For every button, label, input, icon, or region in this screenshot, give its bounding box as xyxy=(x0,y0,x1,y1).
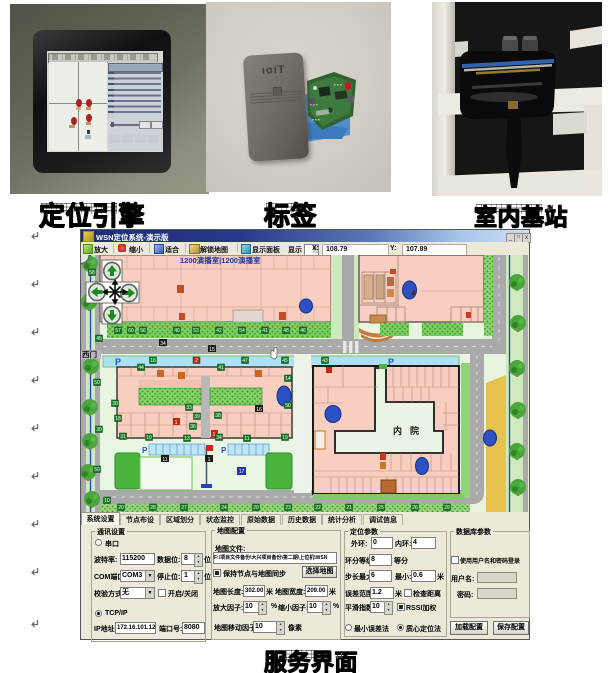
svg-text:34: 34 xyxy=(216,435,222,441)
svg-text:45: 45 xyxy=(96,336,102,342)
svg-text:10: 10 xyxy=(146,435,152,441)
svg-text:10: 10 xyxy=(104,498,110,504)
svg-text:47: 47 xyxy=(242,358,248,364)
svg-text:21: 21 xyxy=(346,505,352,511)
svg-text:50: 50 xyxy=(285,403,291,409)
svg-text:P: P xyxy=(142,446,148,455)
svg-text:48: 48 xyxy=(283,328,289,334)
svg-text:2: 2 xyxy=(195,358,198,364)
svg-text:16: 16 xyxy=(150,358,156,364)
svg-text:60: 60 xyxy=(128,328,134,334)
svg-text:18: 18 xyxy=(115,416,121,422)
svg-text:40: 40 xyxy=(174,328,180,334)
svg-text:27: 27 xyxy=(181,505,187,511)
svg-text:31: 31 xyxy=(120,434,126,440)
svg-text:53: 53 xyxy=(193,328,199,334)
svg-text:41: 41 xyxy=(218,365,224,371)
svg-text:45: 45 xyxy=(282,358,288,364)
svg-text:46: 46 xyxy=(300,328,306,334)
svg-text:38: 38 xyxy=(215,413,221,419)
svg-text:14: 14 xyxy=(285,376,291,382)
svg-text:16: 16 xyxy=(256,407,262,413)
svg-text:28: 28 xyxy=(150,505,156,511)
svg-text:26: 26 xyxy=(412,505,418,511)
svg-text:P: P xyxy=(221,446,227,455)
svg-text:58: 58 xyxy=(89,270,95,276)
svg-text:50: 50 xyxy=(94,467,100,473)
svg-text:11: 11 xyxy=(162,457,167,463)
svg-text:1200演播室|1200演播室: 1200演播室|1200演播室 xyxy=(180,255,261,265)
svg-text:36: 36 xyxy=(190,424,196,430)
svg-text:30: 30 xyxy=(112,401,118,407)
svg-text:13: 13 xyxy=(184,436,190,442)
svg-text:54: 54 xyxy=(239,328,245,334)
svg-text:P: P xyxy=(115,357,121,367)
svg-text:41: 41 xyxy=(262,328,268,334)
svg-text:24: 24 xyxy=(221,505,227,511)
svg-text:20: 20 xyxy=(118,505,124,511)
svg-text:20: 20 xyxy=(253,505,259,511)
svg-text:1: 1 xyxy=(175,420,178,426)
svg-text:1: 1 xyxy=(208,457,211,463)
svg-text:50: 50 xyxy=(94,380,100,386)
svg-text:57: 57 xyxy=(115,328,121,334)
svg-text:43: 43 xyxy=(322,358,328,364)
svg-text:23: 23 xyxy=(285,505,291,511)
svg-text:西门: 西门 xyxy=(82,349,97,359)
svg-text:22: 22 xyxy=(315,505,321,511)
svg-text:15: 15 xyxy=(209,347,215,353)
svg-text:44: 44 xyxy=(138,365,144,371)
svg-text:11: 11 xyxy=(244,436,249,442)
svg-text:30: 30 xyxy=(96,427,102,433)
svg-text:56: 56 xyxy=(140,328,146,334)
svg-text:42: 42 xyxy=(216,328,222,334)
svg-text:33: 33 xyxy=(186,405,192,411)
svg-text:34: 34 xyxy=(160,341,166,347)
svg-text:25: 25 xyxy=(378,505,384,511)
svg-text:内院: 内院 xyxy=(393,425,427,436)
svg-text:39: 39 xyxy=(194,414,200,420)
svg-text:17: 17 xyxy=(239,469,245,475)
svg-text:1: 1 xyxy=(213,432,216,438)
svg-text:19: 19 xyxy=(282,435,288,441)
svg-text:29: 29 xyxy=(444,505,450,511)
